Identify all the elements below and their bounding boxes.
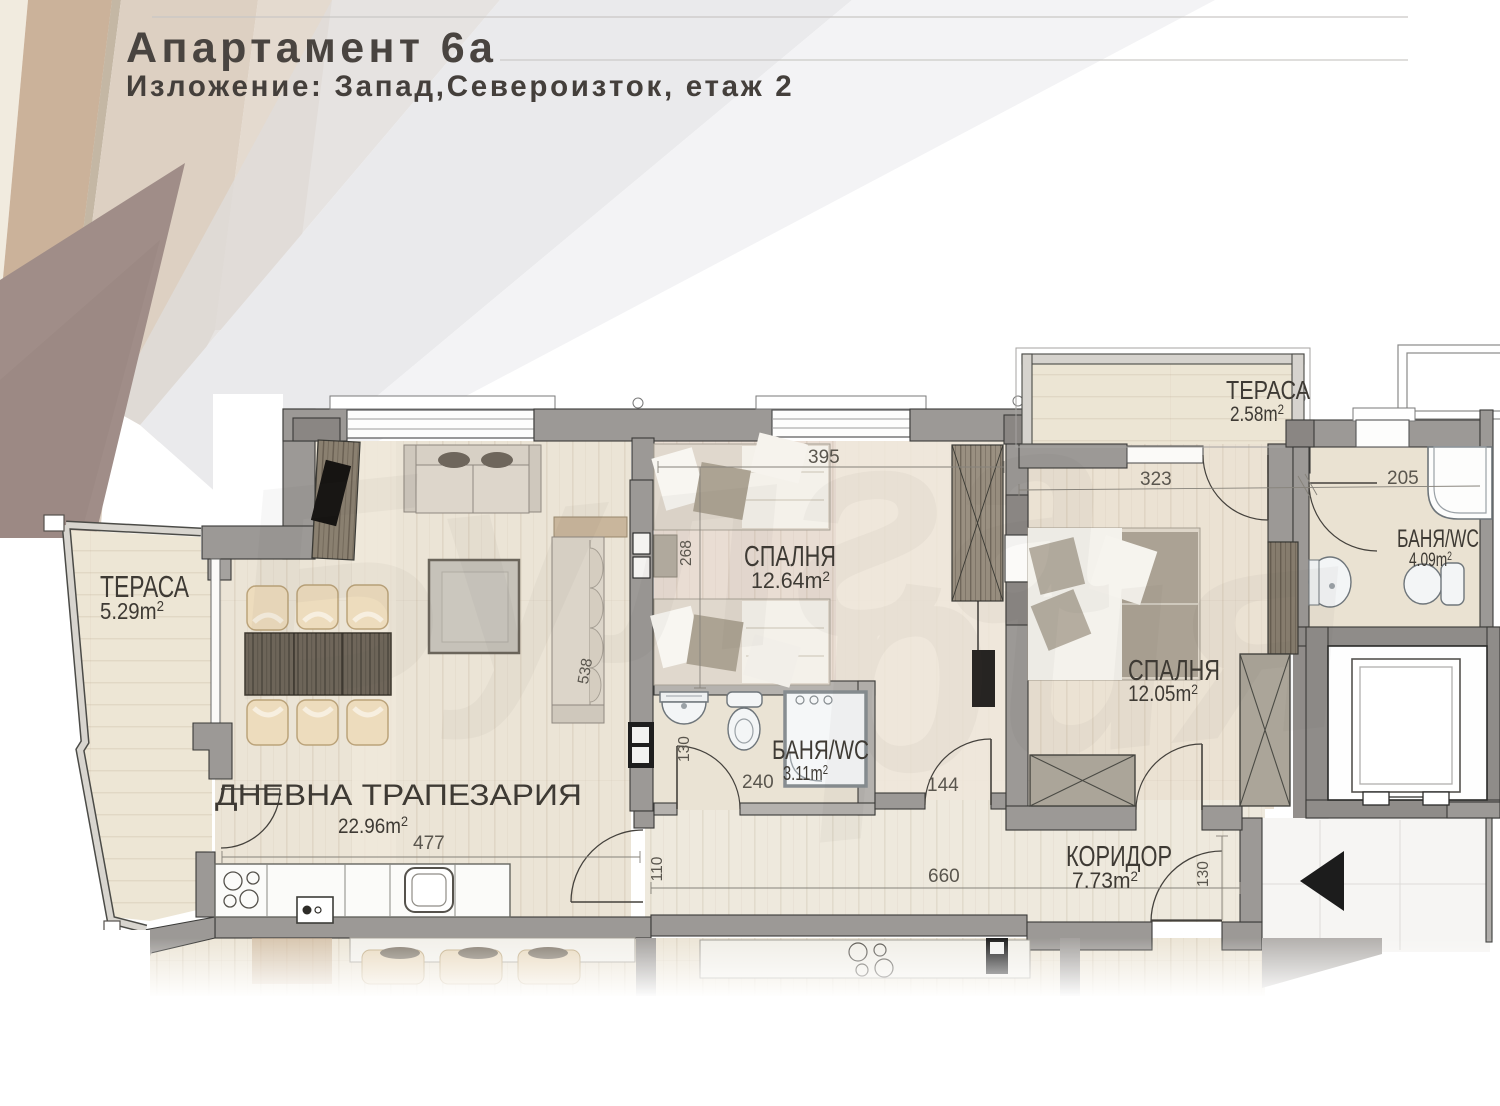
svg-text:Апартамент 6а: Апартамент 6а xyxy=(126,24,497,72)
svg-text:2.58m2: 2.58m2 xyxy=(1230,401,1284,426)
svg-text:477: 477 xyxy=(413,833,445,854)
svg-text:7.73m2: 7.73m2 xyxy=(1072,868,1138,893)
svg-text:110: 110 xyxy=(649,856,666,881)
svg-text:ТЕРАСА: ТЕРАСА xyxy=(1226,375,1311,405)
svg-text:660: 660 xyxy=(928,866,960,887)
svg-text:рия: рия xyxy=(782,453,1367,847)
svg-text:4.09m2: 4.09m2 xyxy=(1409,549,1452,571)
svg-text:22.96m2: 22.96m2 xyxy=(338,813,408,838)
svg-text:130: 130 xyxy=(1195,861,1212,887)
svg-text:130: 130 xyxy=(676,736,693,762)
svg-text:Изложение: Запад,Североизток,: Изложение: Запад,Североизток, етаж 2 xyxy=(126,70,794,103)
svg-text:ДНЕВНА ТРАПЕЗАРИЯ: ДНЕВНА ТРАПЕЗАРИЯ xyxy=(215,779,582,812)
svg-text:240: 240 xyxy=(742,772,774,793)
svg-text:БАНЯ/WC: БАНЯ/WC xyxy=(1397,525,1479,553)
svg-text:205: 205 xyxy=(1387,468,1419,489)
svg-text:5.29m2: 5.29m2 xyxy=(100,598,164,624)
